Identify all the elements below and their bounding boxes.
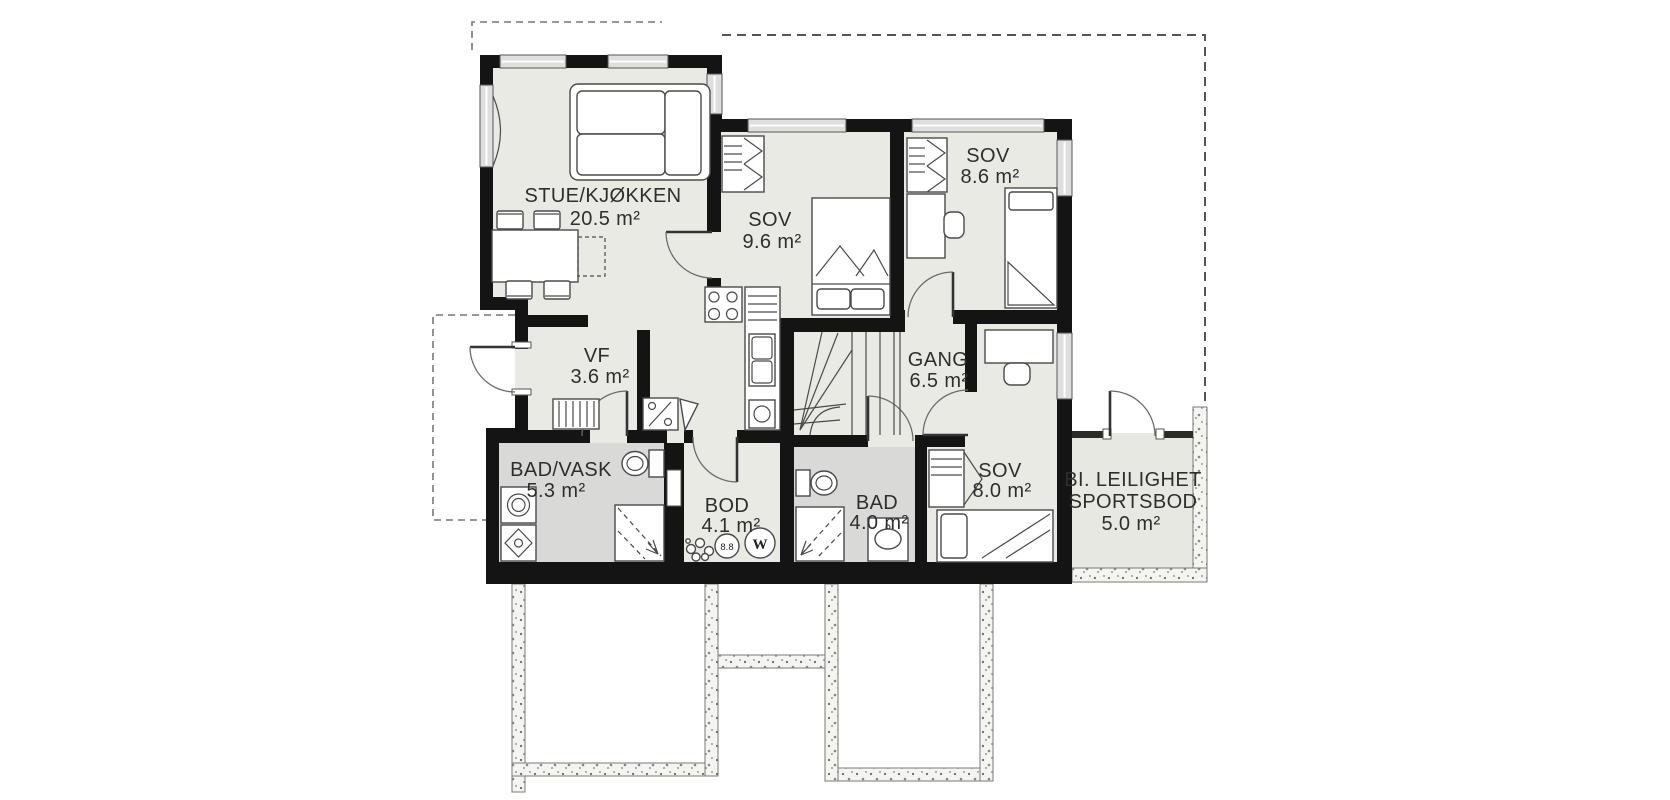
room-area: 8.6 m² [960, 166, 1019, 188]
window [1057, 140, 1072, 196]
room-name: SOV [966, 145, 1010, 167]
room-name: BAD [856, 492, 898, 514]
water-heater-label: W [753, 537, 768, 553]
window [1057, 333, 1072, 399]
room-name-line2: SPORTSBOD [1069, 491, 1198, 513]
single-bed-bedroom2 [1005, 188, 1057, 308]
room-area: 8.0 m² [972, 480, 1031, 502]
annex-door [1110, 391, 1155, 436]
room-name: BAD/VASK [510, 459, 612, 481]
window [480, 85, 493, 167]
room-area: 3.6 m² [570, 366, 629, 388]
room-area: 6.5 m² [909, 370, 968, 392]
room-area: 9.6 m² [742, 231, 801, 253]
sofa [570, 84, 710, 180]
drain-label: 8.8 [720, 542, 733, 553]
wall-niche [667, 470, 681, 506]
double-bed-bedroom1 [812, 198, 890, 315]
foundation-walls [512, 584, 993, 792]
toilet-bathroom [796, 470, 837, 496]
floor-drain-marker: 8.8 [715, 534, 739, 558]
room-name: SOV [978, 460, 1022, 482]
room-area: 5.3 m² [526, 480, 585, 502]
single-bed-bedroom3 [937, 510, 1053, 562]
floor-plan-drawing: 8.8 W STUE/KJØKKEN 20.5 m² [0, 0, 1670, 800]
room-area: 4.1 m² [701, 515, 760, 537]
hallway-radiator [553, 399, 599, 429]
shower-bath-laundry [615, 505, 664, 561]
shower-bathroom [796, 507, 844, 561]
room-name-line1: BI. LEILIGHET [1064, 469, 1201, 491]
room-area: 20.5 m² [570, 208, 641, 230]
window [748, 119, 846, 132]
window [912, 119, 1044, 132]
roof-overhang-outline [472, 22, 662, 50]
room-area: 4.0 m² [849, 512, 908, 534]
toilet-bath-laundry [622, 450, 664, 477]
dryer [501, 525, 536, 561]
room-name: GANG [908, 349, 969, 371]
room-name: VF [584, 345, 610, 367]
window [608, 55, 668, 68]
floor-plan-page: 8.8 W STUE/KJØKKEN 20.5 m² [0, 0, 1670, 800]
wardrobe-bedroom2 [907, 138, 947, 192]
window [500, 55, 566, 68]
room-name: SOV [748, 209, 792, 231]
room-area: 5.0 m² [1101, 513, 1160, 535]
room-name: STUE/KJØKKEN [524, 185, 681, 207]
wardrobe-bedroom1 [722, 136, 764, 192]
room-label-gang: GANG 6.5 m² [908, 349, 969, 392]
room-name: BOD [705, 495, 750, 517]
